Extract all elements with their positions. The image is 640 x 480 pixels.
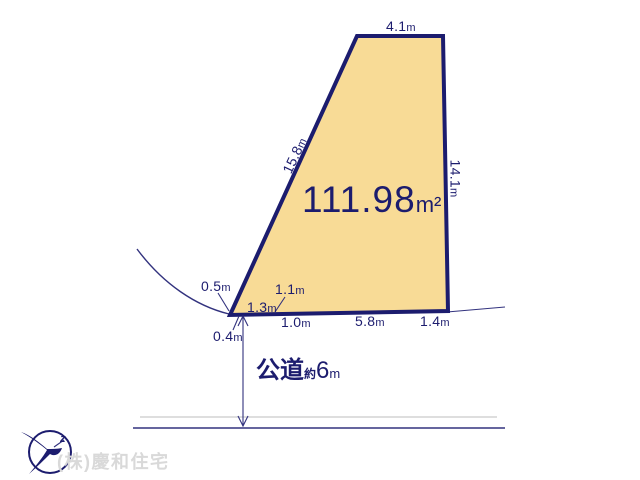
measurement-unit: m [406, 22, 415, 34]
measurement-bottom-10: 1.0m [281, 315, 311, 330]
road-approx: 約 [304, 367, 316, 381]
measurement-unit: m [440, 317, 449, 329]
road-width-unit: m [329, 366, 340, 381]
area-value: 111.98 [302, 179, 416, 220]
area-unit: m² [416, 192, 442, 217]
measurement-corner-13: 1.3m [247, 300, 277, 315]
measurement-unit: m [301, 318, 310, 330]
measurement-corner-11: 1.1m [275, 282, 305, 297]
measurement-value: 1.3 [247, 299, 267, 315]
measurement-unit: m [233, 332, 242, 344]
area-label: 111.98m² [302, 181, 441, 218]
company-name: (株)慶和住宅 [57, 448, 170, 474]
measurement-value: 1.1 [275, 281, 295, 297]
road-label: 公道約6m [256, 359, 340, 383]
diagram-canvas: z [0, 0, 640, 480]
road-name: 公道 [256, 357, 304, 384]
land-plot-diagram: z 4.1m 15.8m 14.1m 0.5m 1.1m 1.3m 1.0m 5… [0, 0, 640, 480]
measurement-value: 1.4 [420, 313, 440, 329]
leader-line-04 [233, 316, 239, 330]
measurement-unit: m [221, 282, 230, 294]
measurement-value: 1.0 [281, 314, 301, 330]
svg-text:z: z [59, 433, 66, 445]
measurement-corner-05: 0.5m [201, 279, 231, 294]
measurement-value: 14.1 [447, 160, 463, 188]
measurement-bottom-58: 5.8m [355, 314, 385, 329]
measurement-value: 0.5 [201, 278, 221, 294]
leader-line-05 [218, 293, 229, 311]
measurement-value: 5.8 [355, 313, 375, 329]
measurement-bottom-14: 1.4m [420, 314, 450, 329]
measurement-unit: m [267, 303, 276, 315]
measurement-value: 4.1 [386, 18, 406, 34]
measurement-top: 4.1m [386, 19, 416, 34]
measurement-corner-04: 0.4m [213, 329, 243, 344]
plot-polygon [230, 36, 448, 315]
road-width-value: 6 [316, 357, 329, 384]
measurement-unit: m [375, 317, 384, 329]
road-extension-line [447, 307, 505, 312]
measurement-unit: m [295, 285, 304, 297]
measurement-unit: m [447, 188, 459, 197]
measurement-right: 14.1m [447, 160, 462, 198]
measurement-value: 0.4 [213, 328, 233, 344]
